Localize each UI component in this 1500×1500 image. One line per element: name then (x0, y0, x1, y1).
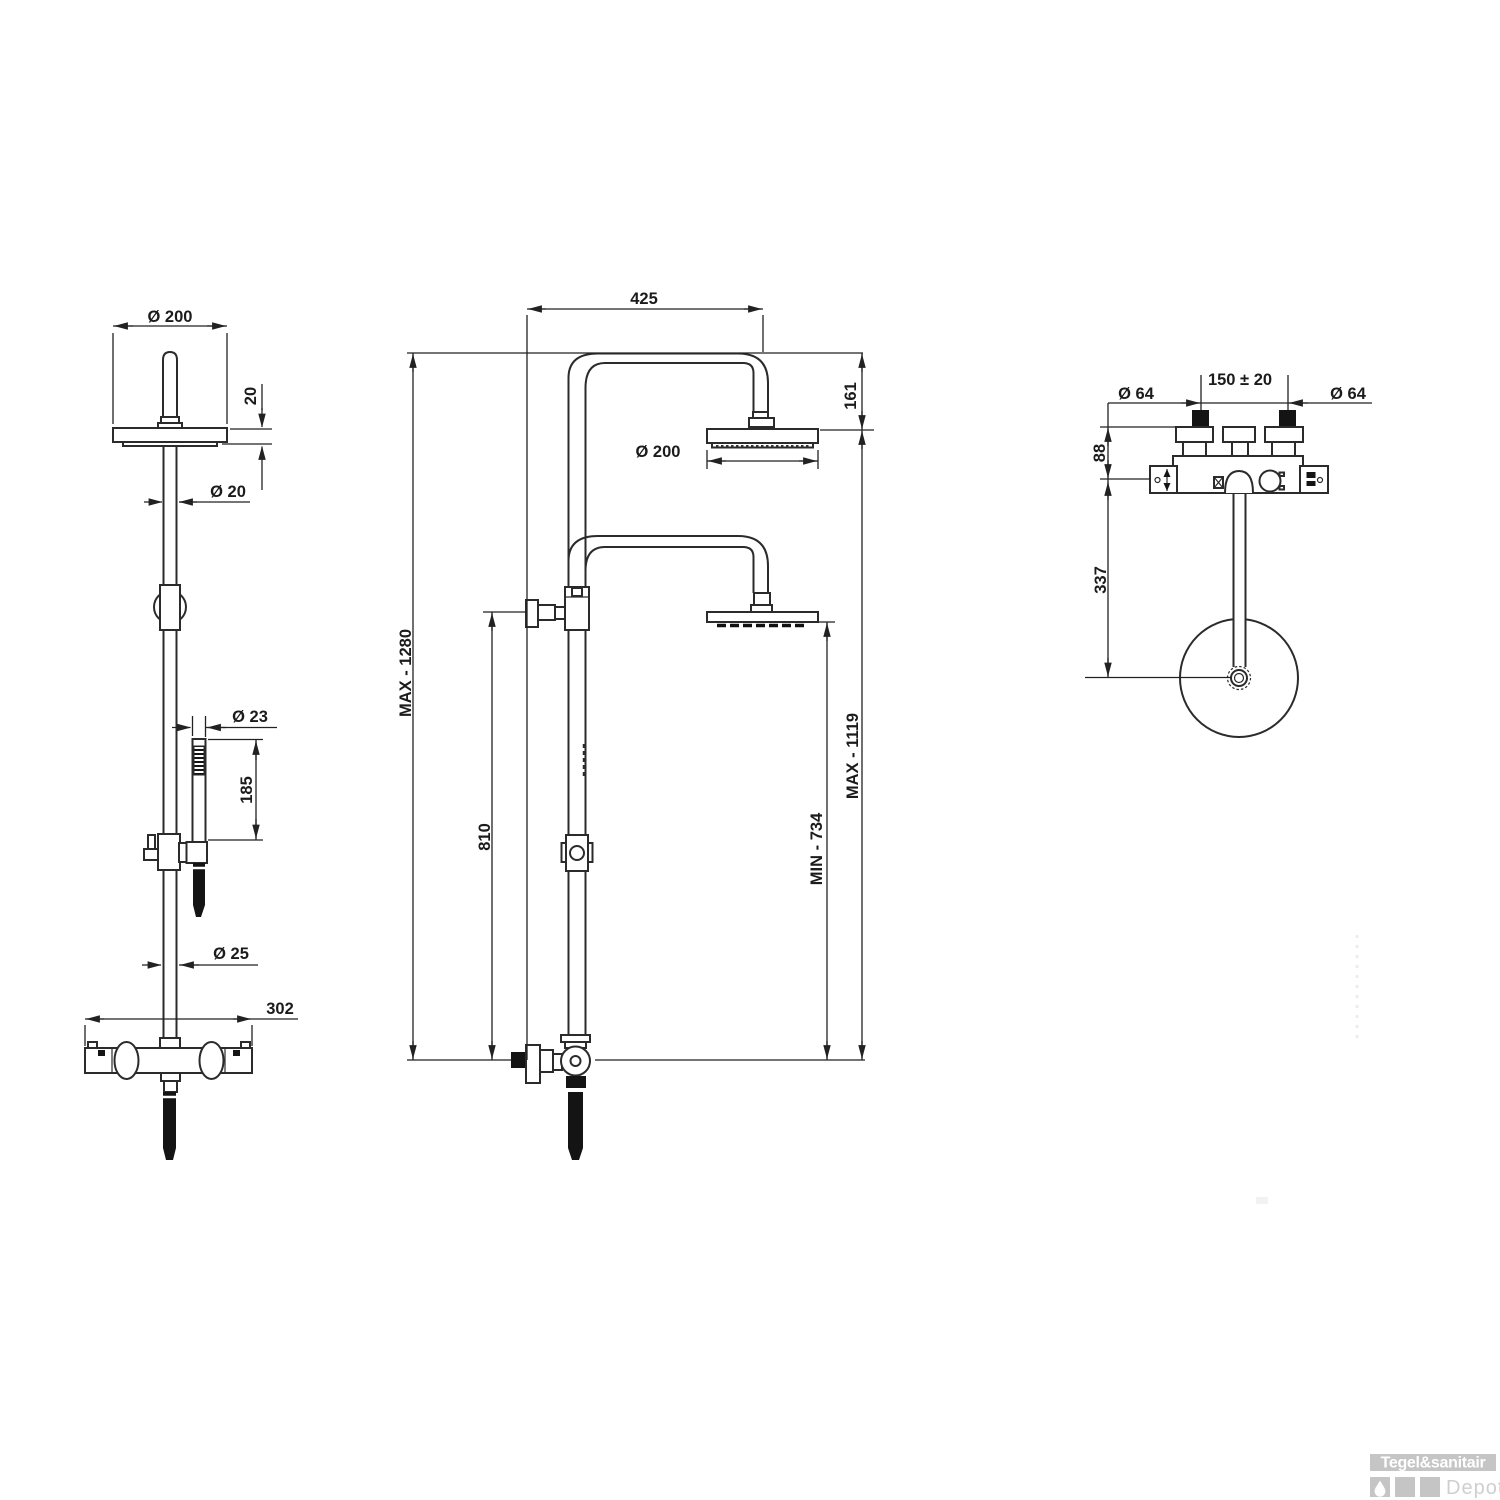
logo-square (1395, 1477, 1415, 1497)
hand-shower (193, 739, 206, 917)
front-view-dimensions: 425 MAX - 1280 810 161 MAX - 1119 (397, 290, 874, 1060)
dim-head-diameter-front: Ø 200 (636, 443, 681, 461)
top-view-dimensions: 150 ± 20 Ø 64 Ø 64 88 337 (1085, 371, 1372, 678)
logo-sub-brand-text: Depot (1446, 1477, 1500, 1499)
top-view: 150 ± 20 Ø 64 Ø 64 88 337 (1085, 371, 1372, 1204)
dim-max-head-height: MAX - 1119 (844, 713, 862, 799)
technical-drawing-page: Ø 200 20 Ø 20 Ø 23 (0, 0, 1500, 1500)
dim-max-total-height: MAX - 1280 (397, 629, 415, 717)
logo: Tegel&sanitair Depot (1370, 1454, 1500, 1499)
dim-head-drop: 161 (842, 382, 860, 410)
dim-arm-reach: 425 (630, 290, 658, 308)
dim-head-thickness: 20 (242, 387, 260, 405)
mixer-side (85, 1038, 252, 1160)
shower-system-technical-drawing: Ø 200 20 Ø 20 Ø 23 (0, 0, 1500, 1500)
inlet-valve (511, 1035, 590, 1160)
dim-mixer-offset: 88 (1091, 444, 1109, 462)
riser-pipe (164, 446, 177, 1048)
wall-bracket (526, 587, 589, 630)
front-slider (562, 835, 593, 871)
dim-pipe-diameter: Ø 20 (210, 483, 246, 501)
print-artifact (1256, 1197, 1268, 1204)
logo-brand-text: Tegel&sanitair (1381, 1455, 1486, 1472)
ball-joint (154, 585, 186, 630)
dim-head-center-offset: 337 (1092, 566, 1110, 594)
lower-shower-arm (569, 536, 819, 626)
dim-mixer-width: 302 (266, 1000, 294, 1018)
front-view: 425 MAX - 1280 810 161 MAX - 1119 (397, 290, 874, 1160)
dim-right-handle-diameter: Ø 64 (1330, 385, 1367, 403)
side-view: Ø 200 20 Ø 20 Ø 23 (85, 308, 298, 1160)
dim-handset-length: 185 (238, 776, 256, 804)
dim-riser-diameter: Ø 25 (213, 945, 249, 963)
dim-left-handle-diameter: Ø 64 (1118, 385, 1155, 403)
upper-shower-arm (569, 354, 819, 448)
side-view-dimensions: Ø 200 20 Ø 20 Ø 23 (85, 308, 298, 1046)
dim-min-handset-height: MIN - 734 (808, 812, 826, 885)
dim-handle-spacing: 150 ± 20 (1208, 371, 1272, 389)
dim-handset-diameter: Ø 23 (232, 708, 268, 726)
top-mixer (1150, 410, 1328, 493)
logo-square (1420, 1477, 1440, 1497)
shower-head-side (113, 352, 227, 446)
dim-bracket-height: 810 (476, 823, 494, 851)
front-riser-pipe (569, 378, 586, 1035)
dim-head-diameter-side: Ø 200 (148, 308, 193, 326)
arm-overlap-mask (1235, 612, 1245, 670)
